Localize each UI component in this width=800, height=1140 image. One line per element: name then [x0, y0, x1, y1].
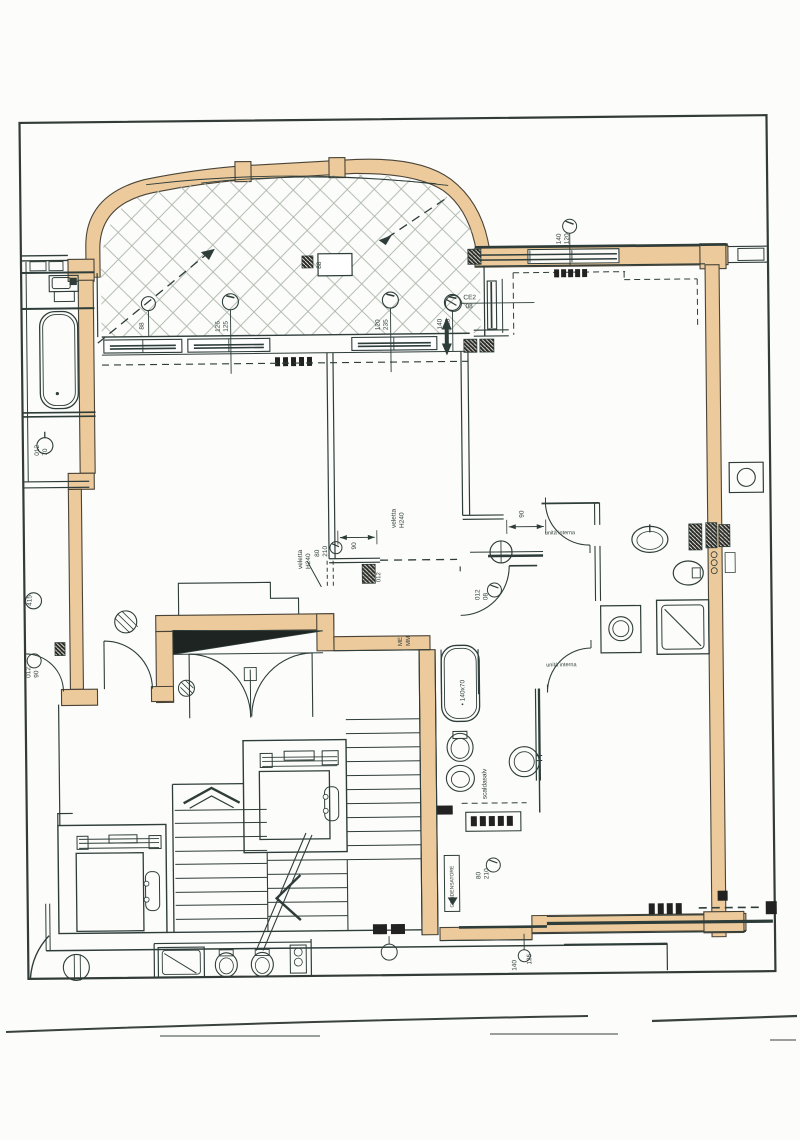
svg-text:125: 125 [223, 321, 230, 332]
svg-text:210: 210 [483, 868, 490, 879]
svg-text:140: 140 [511, 960, 518, 971]
svg-text:80: 80 [314, 549, 321, 557]
svg-text:125: 125 [526, 953, 533, 964]
svg-text:210: 210 [322, 546, 329, 557]
svg-text:H240: H240 [399, 512, 406, 528]
svg-text:120: 120 [564, 233, 571, 244]
svg-text:scaldasalv: scaldasalv [481, 768, 488, 799]
svg-text:012: 012 [474, 589, 481, 600]
svg-text:125: 125 [445, 318, 452, 329]
svg-text:H240: H240 [305, 553, 312, 569]
svg-text:140: 140 [437, 318, 444, 329]
svg-text:90: 90 [519, 510, 526, 518]
svg-text:88: 88 [316, 261, 323, 269]
svg-text:90: 90 [351, 542, 358, 550]
svg-text:120: 120 [375, 319, 382, 330]
svg-text:unità interna: unità interna [545, 530, 576, 536]
svg-text:80: 80 [475, 872, 482, 880]
svg-text:126: 126 [215, 321, 222, 332]
svg-text:012: 012 [34, 445, 41, 456]
svg-text:012: 012 [376, 572, 382, 583]
svg-text:• 140x70: • 140x70 [459, 680, 466, 706]
svg-text:CE2: CE2 [463, 294, 476, 301]
svg-text:90: 90 [33, 670, 40, 678]
svg-text:08: 08 [465, 303, 473, 310]
svg-text:CONDENSATORE: CONDENSATORE [449, 865, 455, 907]
svg-text:ME: ME [398, 637, 404, 646]
svg-text:140: 140 [556, 233, 563, 244]
svg-text:70: 70 [42, 448, 49, 456]
svg-text:235: 235 [383, 319, 390, 330]
svg-text:415: 415 [26, 595, 33, 606]
svg-text:88: 88 [139, 322, 146, 330]
svg-text:veletta: veletta [297, 549, 304, 569]
svg-text:veletta: veletta [391, 508, 398, 528]
svg-text:08: 08 [482, 592, 489, 600]
svg-text:unità interna: unità interna [546, 662, 577, 668]
svg-text:MM: MM [406, 636, 412, 646]
svg-text:012: 012 [25, 667, 32, 678]
